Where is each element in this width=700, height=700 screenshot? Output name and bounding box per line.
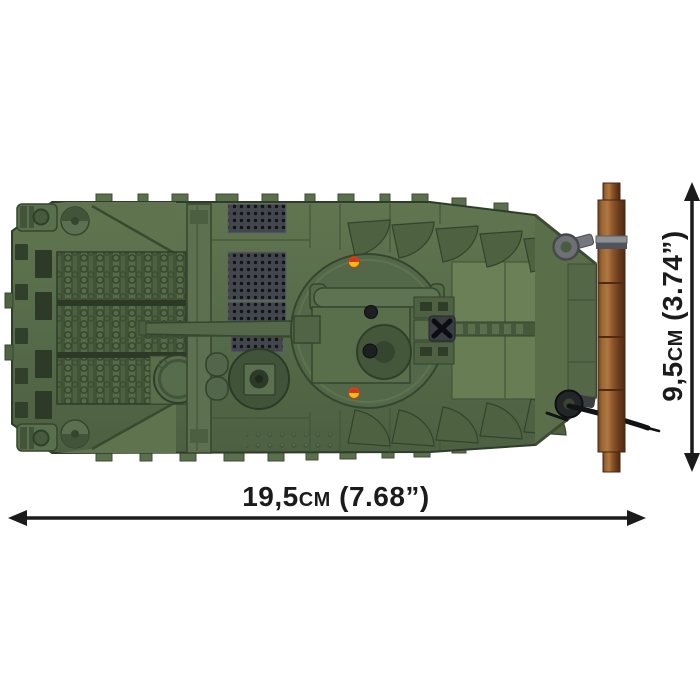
height-dimension-label: 9,5cm (3.74”) — [657, 230, 688, 401]
periscope-knob — [365, 306, 378, 319]
width-dimension-label: 19,5cm (7.68”) — [242, 481, 430, 512]
log-clamp — [596, 236, 627, 243]
gun-barrel — [139, 321, 293, 337]
periscope-knob — [363, 344, 377, 358]
log-clamp-shadow — [596, 243, 627, 249]
driver-cupola — [229, 349, 289, 409]
cross-insignia — [429, 316, 455, 341]
rear-idler-cap-bottom — [61, 420, 89, 448]
turret-marking-top — [349, 257, 360, 268]
rear-corner-hinge-top — [17, 204, 57, 231]
rear-edge-clip — [5, 345, 13, 360]
gun-mantlet — [294, 316, 320, 343]
stud-plate — [246, 427, 334, 450]
rear-edge-clip — [5, 293, 13, 308]
turret-marking-bottom — [349, 388, 360, 399]
tank-dimension-diagram: 19,5cm (7.68”) 9,5cm (3.74”) — [0, 0, 700, 700]
product-dimension-image: 19,5cm (7.68”) 9,5cm (3.74”) — [0, 0, 700, 700]
wooden-log — [596, 183, 627, 472]
rear-corner-hinge-bottom — [17, 424, 57, 451]
rear-idler-cap-top — [61, 207, 89, 235]
